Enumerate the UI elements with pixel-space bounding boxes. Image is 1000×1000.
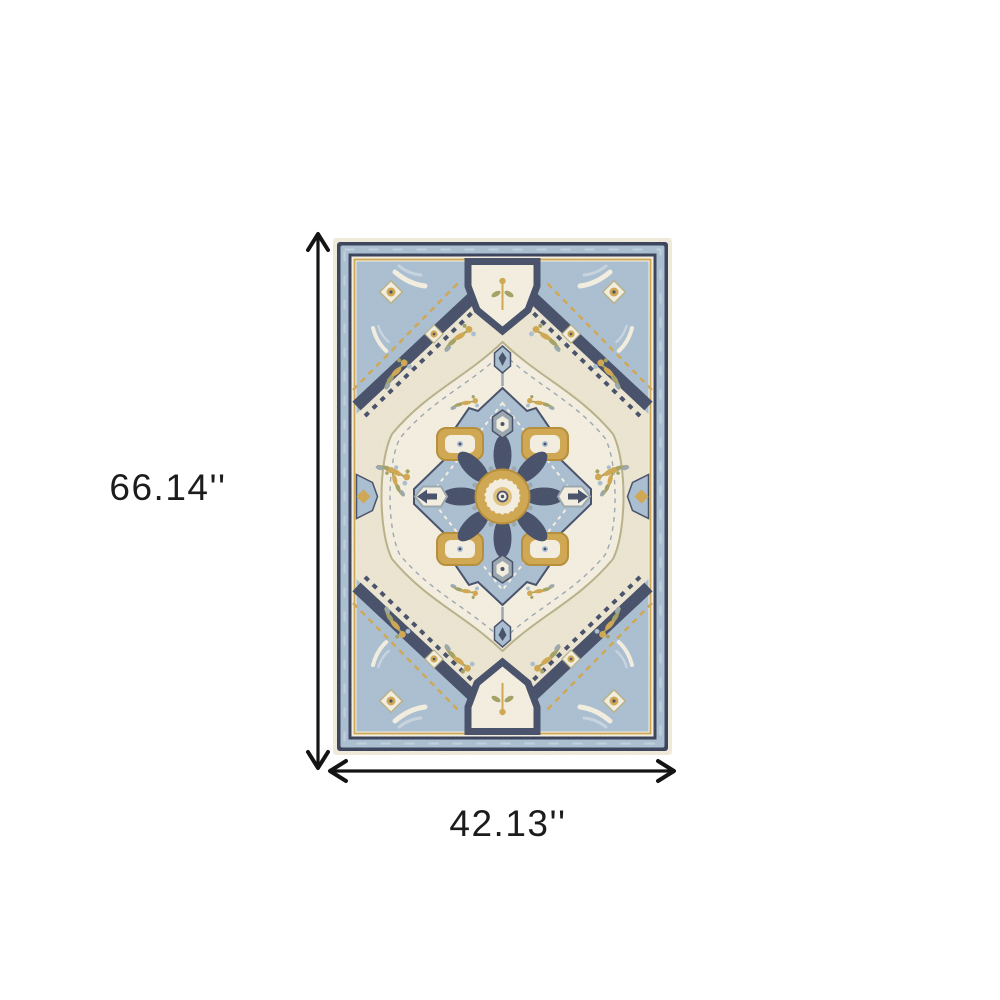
width-dimension-label: 42.13'' <box>400 798 616 850</box>
rug-texture <box>333 238 672 755</box>
diagram-canvas: 66.14'' 42.13'' <box>0 0 1000 1000</box>
height-dimension-label: 66.14'' <box>60 462 276 514</box>
height-dimension-arrow <box>300 226 336 776</box>
rug-image <box>333 238 672 755</box>
width-dimension-arrow <box>322 753 682 789</box>
